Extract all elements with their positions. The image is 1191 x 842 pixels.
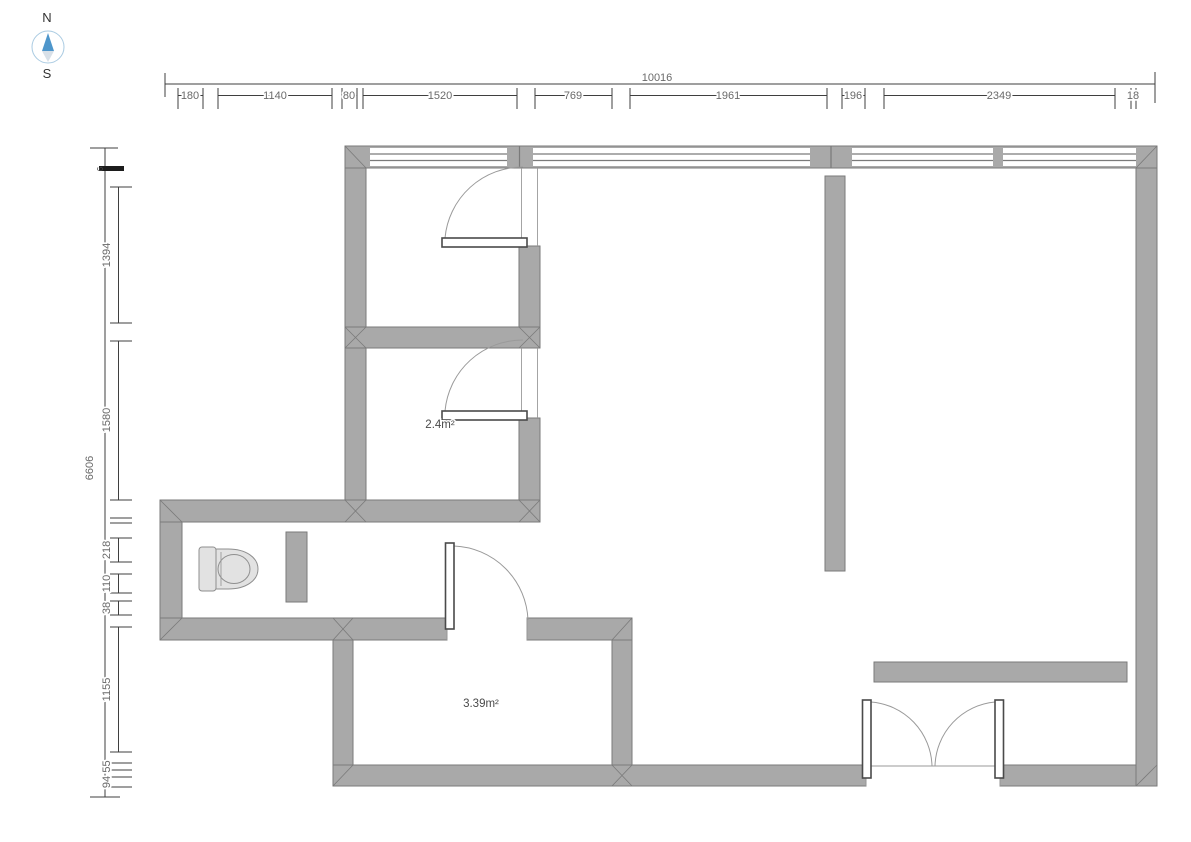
wall-room3-top: [527, 618, 632, 640]
window-glass: [1003, 148, 1136, 166]
wall-room3-left: [333, 640, 353, 786]
wall-hall-top: [160, 500, 540, 522]
dim-label: 1155: [101, 678, 113, 702]
wall-right: [1136, 168, 1157, 786]
dim-label: 196: [844, 90, 862, 102]
floorplan-canvas: N S 10016 180 1140 80 1520: [0, 0, 1191, 842]
compass-south-label: S: [43, 66, 52, 81]
hall-partition: [286, 532, 307, 602]
window-glass: [533, 148, 810, 166]
door-swing-arc: [445, 167, 523, 238]
wall-bottom-right: [1000, 765, 1157, 786]
toilet-tank: [199, 547, 216, 591]
walls: [160, 146, 1157, 786]
wall-room1-right: [519, 246, 540, 327]
door-swing-arc: [935, 702, 995, 766]
dim-label: 1140: [263, 90, 287, 102]
dim-label: 110: [101, 575, 113, 593]
door-swing-arc: [454, 546, 528, 620]
dim-label: 94: [101, 776, 113, 788]
dim-label: 1394: [101, 243, 113, 267]
room-area-label: 2.4m²: [425, 419, 455, 431]
door-leaf: [446, 543, 455, 629]
dim-label: 80: [343, 90, 355, 102]
wall-bottom-left: [333, 765, 866, 786]
window-glass: [370, 148, 507, 166]
entrance-sidelight-bar: [874, 662, 1127, 682]
wall-room-divider: [345, 327, 540, 348]
wall-freestanding: [825, 176, 845, 571]
dim-label: 6: [96, 166, 105, 171]
compass: N S: [32, 10, 64, 81]
top-dimension-chain: 180 1140 80 1520 769 1961 196 23: [178, 88, 1139, 109]
toilet-fixture: [199, 547, 258, 591]
door-room2: [442, 340, 538, 420]
left-dimension-chain: 6 1394 1580 218 110 38 1155: [96, 166, 132, 788]
dim-label: 1961: [716, 90, 740, 102]
wall-room3-right: [612, 640, 632, 765]
dim-label: 1580: [101, 408, 113, 432]
dim-label: 180: [181, 90, 199, 102]
door-swing-arc: [871, 702, 932, 766]
door-leaf: [442, 411, 527, 420]
dim-total-label: 10016: [642, 72, 673, 84]
dim-label: 218: [101, 541, 113, 559]
dim-label: 55: [101, 760, 113, 772]
wall-hall-bottom: [160, 618, 447, 640]
dim-label: 2349: [987, 90, 1011, 102]
compass-north-label: N: [42, 10, 51, 25]
dim-total-label: 6606: [84, 456, 96, 480]
door-room1: [442, 167, 538, 247]
dim-label: 18: [1127, 90, 1139, 102]
dim-label: 38: [101, 602, 113, 614]
double-door-entrance: [863, 700, 1004, 786]
dim-label: 769: [564, 90, 582, 102]
floorplan-svg: N S 10016 180 1140 80 1520: [0, 0, 1191, 842]
door-leaf-left: [863, 700, 872, 778]
room-area-label: 3.39m²: [463, 698, 499, 710]
door-hall-room3: [446, 543, 529, 640]
miter-joints: [160, 146, 1157, 786]
dim-label: 1520: [428, 90, 452, 102]
window-glass: [852, 148, 993, 166]
door-leaf-right: [995, 700, 1004, 778]
door-leaf: [442, 238, 527, 247]
door-swing-arc: [445, 340, 523, 411]
toilet-bowl-inner: [218, 555, 250, 584]
